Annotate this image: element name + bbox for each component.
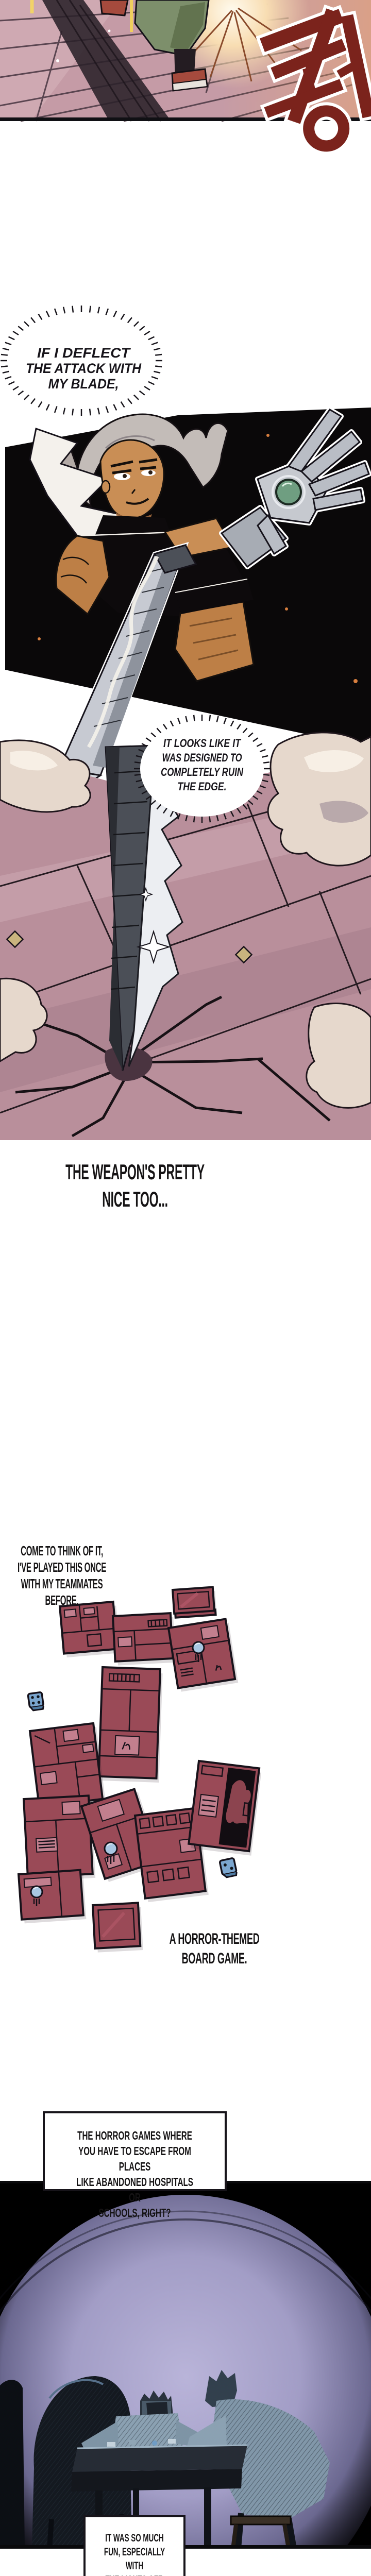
serrated-edge: [129, 745, 182, 1066]
impact-hole: [105, 1046, 152, 1081]
explosion-flash: [155, 0, 309, 89]
board-tile: [173, 1587, 217, 1618]
panel-border: [0, 117, 371, 121]
shorts: [135, 0, 209, 56]
upper-arm: [165, 518, 233, 557]
ground: [0, 746, 371, 1140]
hair: [77, 414, 228, 506]
torso-abs: [175, 602, 254, 681]
blade-hilt: [155, 545, 196, 573]
board-tile: [24, 1795, 95, 1882]
eyebrows: [111, 460, 157, 466]
pawn-icon: [31, 1886, 42, 1906]
motion-shadow: [42, 0, 171, 121]
impact-cracks: [15, 997, 330, 1136]
shoe-sole: [173, 79, 207, 91]
board-tile: [98, 1667, 163, 1783]
floor-stud: [235, 946, 251, 962]
blade-wisp: [89, 556, 157, 747]
caption-line: I'VE PLAYED THIS ONCE: [0, 1559, 137, 1575]
chin-shadow: [116, 513, 152, 526]
floor-plank-lines: [0, 4, 361, 121]
ab-lines: [190, 618, 238, 659]
slab-dark: [0, 927, 371, 1092]
panel-cracked-ground: [0, 719, 371, 1144]
bubble-spikes: [134, 715, 270, 823]
bubble-line: WAS DESIGNED TO: [162, 751, 242, 764]
bubble-line: IT LOOKS LIKE IT: [163, 737, 241, 750]
held-blade: [44, 545, 196, 812]
nose: [132, 489, 135, 494]
board-tile: [93, 1903, 143, 1953]
caption-line: THE LIGHTS OFF.: [103, 2573, 166, 2576]
panel-impact-floor: 쾅: [0, 0, 371, 160]
lantern-vignette: [0, 2195, 371, 2549]
bubble-body: [7, 312, 156, 409]
neck-collar: [93, 515, 175, 546]
caption-line: SCHOOLS, RIGHT?: [75, 2205, 194, 2221]
floor-background: [0, 0, 371, 121]
board-tile-dark-door: [188, 1761, 262, 1856]
stuck-blade: [106, 745, 182, 1071]
motion-streaks: [57, 0, 161, 121]
board-tile: [30, 1723, 106, 1811]
slab-lines: [0, 783, 371, 1113]
sparkle-icon-small: [140, 888, 152, 901]
caption-weapon: THE WEAPON'S PRETTY NICE TOO...: [64, 1158, 206, 1213]
panel-background: [0, 2181, 371, 2549]
game-pieces-on-table: [107, 2439, 176, 2447]
hr-mark: [122, 1742, 129, 1749]
shoulder-skin: [56, 536, 109, 614]
bubble-line: MY BLADE,: [48, 376, 119, 392]
bubble-spikes: [1, 306, 162, 416]
bubble-line: IF I DEFLECT: [37, 345, 131, 361]
ember-dots: [38, 422, 358, 683]
caption-line: BEFORE.: [0, 1592, 137, 1608]
board-tile: [19, 1870, 86, 1923]
smoke-wisp: [30, 429, 129, 547]
caption-line: A HORROR-THEMED: [137, 1929, 292, 1949]
muscle-lines: [61, 557, 89, 583]
shoulder-rim: [77, 531, 216, 536]
shoe-back: [100, 0, 128, 15]
ear: [102, 481, 110, 493]
webtoon-page: 쾅: [0, 0, 371, 2576]
face: [100, 440, 164, 518]
eyes: [112, 467, 156, 480]
caption-line: FUN, ESPECIALLY WITH: [103, 2545, 166, 2573]
black-top: [77, 531, 242, 618]
dice-icon: [28, 1692, 44, 1710]
board-tile: [113, 1613, 176, 1666]
caption-line: THE HORROR GAMES WHERE: [75, 2128, 194, 2143]
caption-line: BOARD GAME.: [137, 1949, 292, 1969]
vignette-ring: [0, 2219, 371, 2549]
narration-box-horror-games: THE HORROR GAMES WHERE YOU HAVE TO ESCAP…: [43, 2111, 227, 2191]
pawn-icon: [105, 1842, 117, 1864]
gem-icon: [276, 480, 301, 504]
board-tile: [135, 1808, 209, 1903]
spine-hatching: [111, 771, 149, 989]
figure-standing-silhouette: [0, 2380, 25, 2549]
ember-streaks: [32, 0, 131, 62]
bubble-line: COMPLETELY RUIN: [161, 766, 244, 778]
smirk: [126, 499, 148, 504]
bubble-line: THE ATTACK WITH: [26, 361, 141, 376]
monster-shadow: [225, 1779, 252, 1825]
narration-box-fun: IT WAS SO MUCH FUN, ESPECIALLY WITH THE …: [83, 2515, 185, 2576]
hair-streaks: [106, 436, 160, 466]
sparkle-icon: [138, 931, 169, 962]
caption-think: COME TO THINK OF IT, I'VE PLAYED THIS ON…: [0, 1543, 137, 1608]
chest-band: [175, 579, 254, 614]
gauntlet-halo: [222, 410, 369, 567]
band-rim: [175, 579, 247, 592]
figure-center: [81, 2391, 214, 2454]
bubble-line: THE EDGE.: [178, 780, 227, 793]
speech-bubble-deflect: IF I DEFLECT THE ATTACK WITH MY BLADE,: [0, 296, 170, 425]
leg-blur: [174, 49, 196, 82]
panel-character: [0, 402, 371, 829]
blade-hatching: [94, 567, 170, 726]
board-game-spread: [0, 1577, 371, 1968]
shorts-shade: [170, 2, 205, 52]
caption-line: NICE TOO...: [64, 1185, 206, 1213]
vignette-ring: [0, 2211, 371, 2549]
pawn-icon: [193, 1642, 204, 1662]
flash-rays: [181, 8, 301, 81]
figure-right: [187, 2370, 330, 2549]
board-tile: [60, 1602, 120, 1658]
caption-line: LIKE ABANDONED HOSPITALS OR: [75, 2174, 194, 2205]
bubble-body: [140, 721, 264, 817]
dice-icon: [220, 1858, 237, 1878]
warm-glow-overlay: [222, 0, 371, 121]
floor-slab-light: [0, 0, 121, 121]
smoke-puffs: [0, 733, 371, 1108]
caption-board-game: A HORROR-THEMED BOARD GAME.: [137, 1929, 292, 1969]
panel-table-scene: [0, 2181, 371, 2549]
hr-mark: [215, 1665, 221, 1670]
caption-line: THE WEAPON'S PRETTY: [64, 1158, 206, 1185]
caption-line: WITH MY TEAMMATES: [0, 1575, 137, 1592]
shoe-front: [172, 69, 207, 91]
hair-tail: [39, 431, 78, 471]
slab-light: [0, 796, 371, 922]
caption-line: YOU HAVE TO ESCAPE FROM PLACES: [75, 2143, 194, 2174]
panel-background: [5, 408, 371, 748]
board-tile: [81, 1788, 162, 1883]
gauntlet: [222, 410, 369, 567]
speech-bubble-designed: IT LOOKS LIKE IT WAS DESIGNED TO COMPLET…: [124, 714, 278, 832]
board-tile: [168, 1619, 238, 1692]
caption-line: IT WAS SO MUCH: [103, 2531, 166, 2545]
floor-stud: [7, 931, 23, 947]
sfx-kwang: 쾅: [255, 13, 371, 156]
caption-line: COME TO THINK OF IT,: [0, 1543, 137, 1559]
